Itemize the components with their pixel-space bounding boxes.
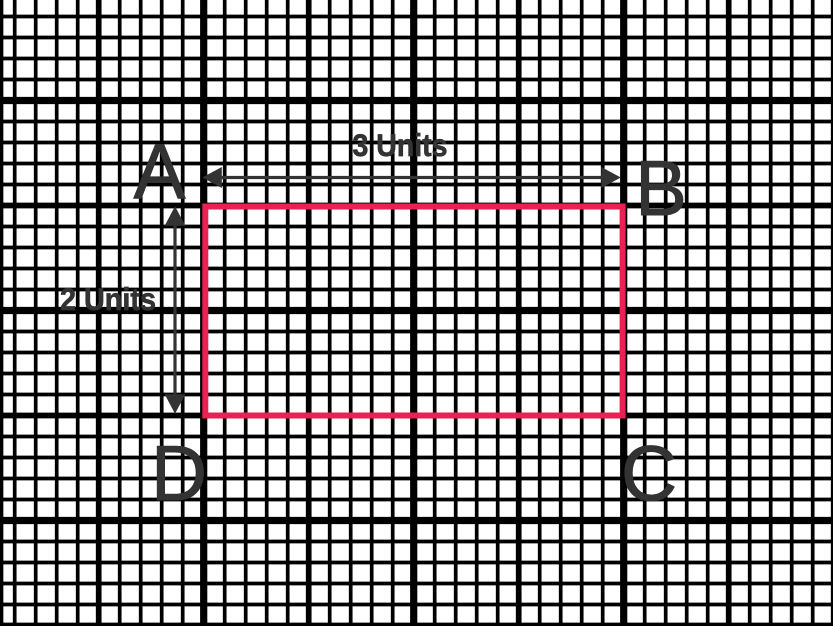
svg-text:A: A xyxy=(133,127,185,215)
svg-text:3 Units: 3 Units xyxy=(353,127,448,163)
svg-text:2 Units: 2 Units xyxy=(60,281,156,317)
svg-text:D: D xyxy=(151,429,207,517)
svg-text:C: C xyxy=(621,429,677,517)
svg-text:B: B xyxy=(635,144,687,232)
